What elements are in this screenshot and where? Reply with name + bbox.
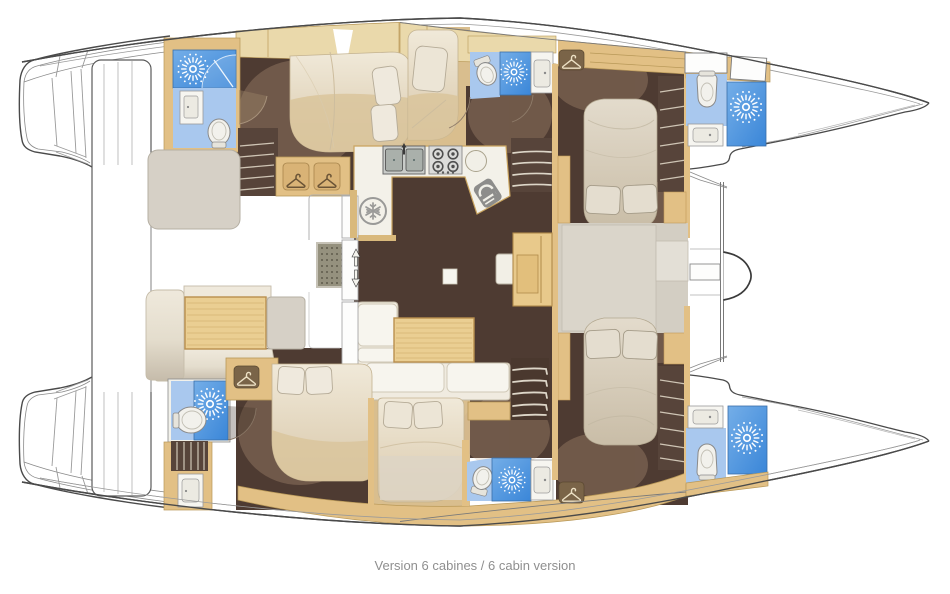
svg-text:Version 6 cabines / 6 cabin ve: Version 6 cabines / 6 cabin version [375, 558, 576, 573]
